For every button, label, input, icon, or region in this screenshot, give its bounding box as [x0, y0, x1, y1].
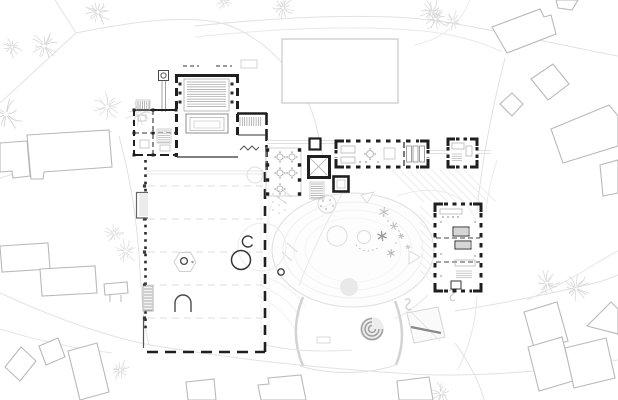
- walkway-lines-east-link: [428, 151, 491, 154]
- tree: [444, 11, 460, 31]
- neighbor-building: [186, 379, 216, 400]
- tree-branchy: [0, 99, 22, 129]
- neighbor-building: [551, 105, 618, 163]
- tree: [217, 0, 231, 9]
- neighbor-building: [397, 377, 433, 400]
- cafe-table: [274, 151, 297, 194]
- garden-fan-contour: [257, 295, 295, 330]
- east-building-furniture: [440, 209, 462, 214]
- garden-circle-filled: [340, 278, 358, 296]
- site-plan: [0, 0, 618, 400]
- chimney: [159, 71, 169, 81]
- orangery-dots: [359, 161, 379, 163]
- neighbor-building: [600, 160, 618, 196]
- hexagon-center-circle: [181, 258, 188, 265]
- tree: [432, 382, 449, 400]
- kiosk-structure: [407, 307, 445, 343]
- neighbor-building: [587, 302, 618, 334]
- road-southeast-trees: [527, 251, 618, 300]
- neighbor-building: [528, 337, 573, 391]
- bench-rect: [317, 337, 330, 343]
- gatehouse-furniture: [466, 146, 472, 156]
- east-building-box: [451, 281, 461, 289]
- garden-walk-bottom: [300, 364, 398, 373]
- skylight-south: [334, 177, 349, 192]
- east-building-chairs: [442, 216, 459, 218]
- auditorium-seating-rows: [187, 82, 226, 107]
- orangery-furniture: [341, 146, 355, 153]
- c-shape-feature: [242, 236, 252, 247]
- auditorium-pier: [179, 83, 234, 104]
- east-building-furniture: [455, 260, 475, 266]
- neighbor-building: [40, 266, 97, 296]
- road-north-upper: [195, 16, 618, 56]
- ground-hatch-east: [392, 170, 496, 202]
- spiral-pad: [360, 317, 384, 341]
- west-wing-furniture: [160, 145, 170, 151]
- chimney-flue: [162, 81, 166, 112]
- tree: [538, 270, 560, 293]
- east-wing-stair-treads: [240, 117, 261, 126]
- east-stair-2-treads: [457, 242, 471, 248]
- tree: [115, 238, 135, 262]
- neighbor-building: [531, 64, 569, 100]
- bench-hook: [405, 299, 411, 310]
- neighbor-building: [27, 130, 112, 179]
- arch-door: [175, 295, 191, 312]
- neighbor-building: [5, 347, 36, 381]
- walkway-lines-pergola: [267, 141, 336, 144]
- hexagon-dot: [191, 261, 193, 263]
- walkway-lines-south: [146, 171, 264, 174]
- neighbor-building: [0, 141, 30, 178]
- stage-mid: [190, 118, 224, 131]
- orangery-furniture: [341, 157, 355, 163]
- tree: [94, 92, 121, 120]
- orangery-furniture: [384, 148, 395, 159]
- neighbor-building: [565, 338, 615, 388]
- large-field-outline: [282, 39, 398, 103]
- tree: [3, 38, 22, 58]
- skylight-small: [310, 139, 321, 150]
- stage-inner: [194, 121, 220, 128]
- plaza-tree-circle: [232, 251, 251, 270]
- plaza-walk-bottom: [266, 345, 352, 351]
- site-plan-canvas: [0, 0, 618, 400]
- road-northeast-boundary: [414, 0, 470, 45]
- east-stair-1-treads: [455, 228, 469, 235]
- neighbor-building: [39, 338, 65, 365]
- gatehouse-furniture: [452, 143, 464, 149]
- road-east-building-south: [458, 295, 477, 369]
- orangery-table: [364, 148, 376, 160]
- orangery-stall: [407, 146, 412, 162]
- road-southeast-upper: [455, 275, 618, 311]
- neighbor-building: [104, 282, 128, 295]
- stair-court-treads: [311, 184, 323, 198]
- road-southeast-down: [455, 343, 484, 400]
- neighbor-building: [500, 93, 523, 116]
- neighbor-buildings: [0, 0, 618, 400]
- neighbor-building: [556, 0, 578, 10]
- tree: [272, 0, 294, 20]
- orangery-stall: [413, 146, 418, 162]
- tree: [113, 360, 130, 379]
- garden-walk-left: [296, 297, 303, 366]
- partition-zigzag: [240, 146, 259, 150]
- small-annex-outline: [241, 60, 257, 68]
- bracket-fill: [139, 194, 148, 216]
- neighbor-building: [0, 243, 50, 272]
- tree: [85, 3, 109, 25]
- west-wing-furniture: [140, 140, 149, 148]
- gatehouse-hatch: [452, 154, 462, 161]
- neighbor-building: [258, 375, 306, 400]
- plaza: [137, 160, 287, 352]
- tree: [104, 224, 124, 241]
- garden-walk-right: [395, 301, 402, 365]
- orangery-stall: [420, 146, 425, 162]
- road-gatehouse-east-2: [486, 160, 497, 212]
- neighbor-building: [492, 9, 556, 53]
- east-building-table-hatch: [456, 271, 472, 278]
